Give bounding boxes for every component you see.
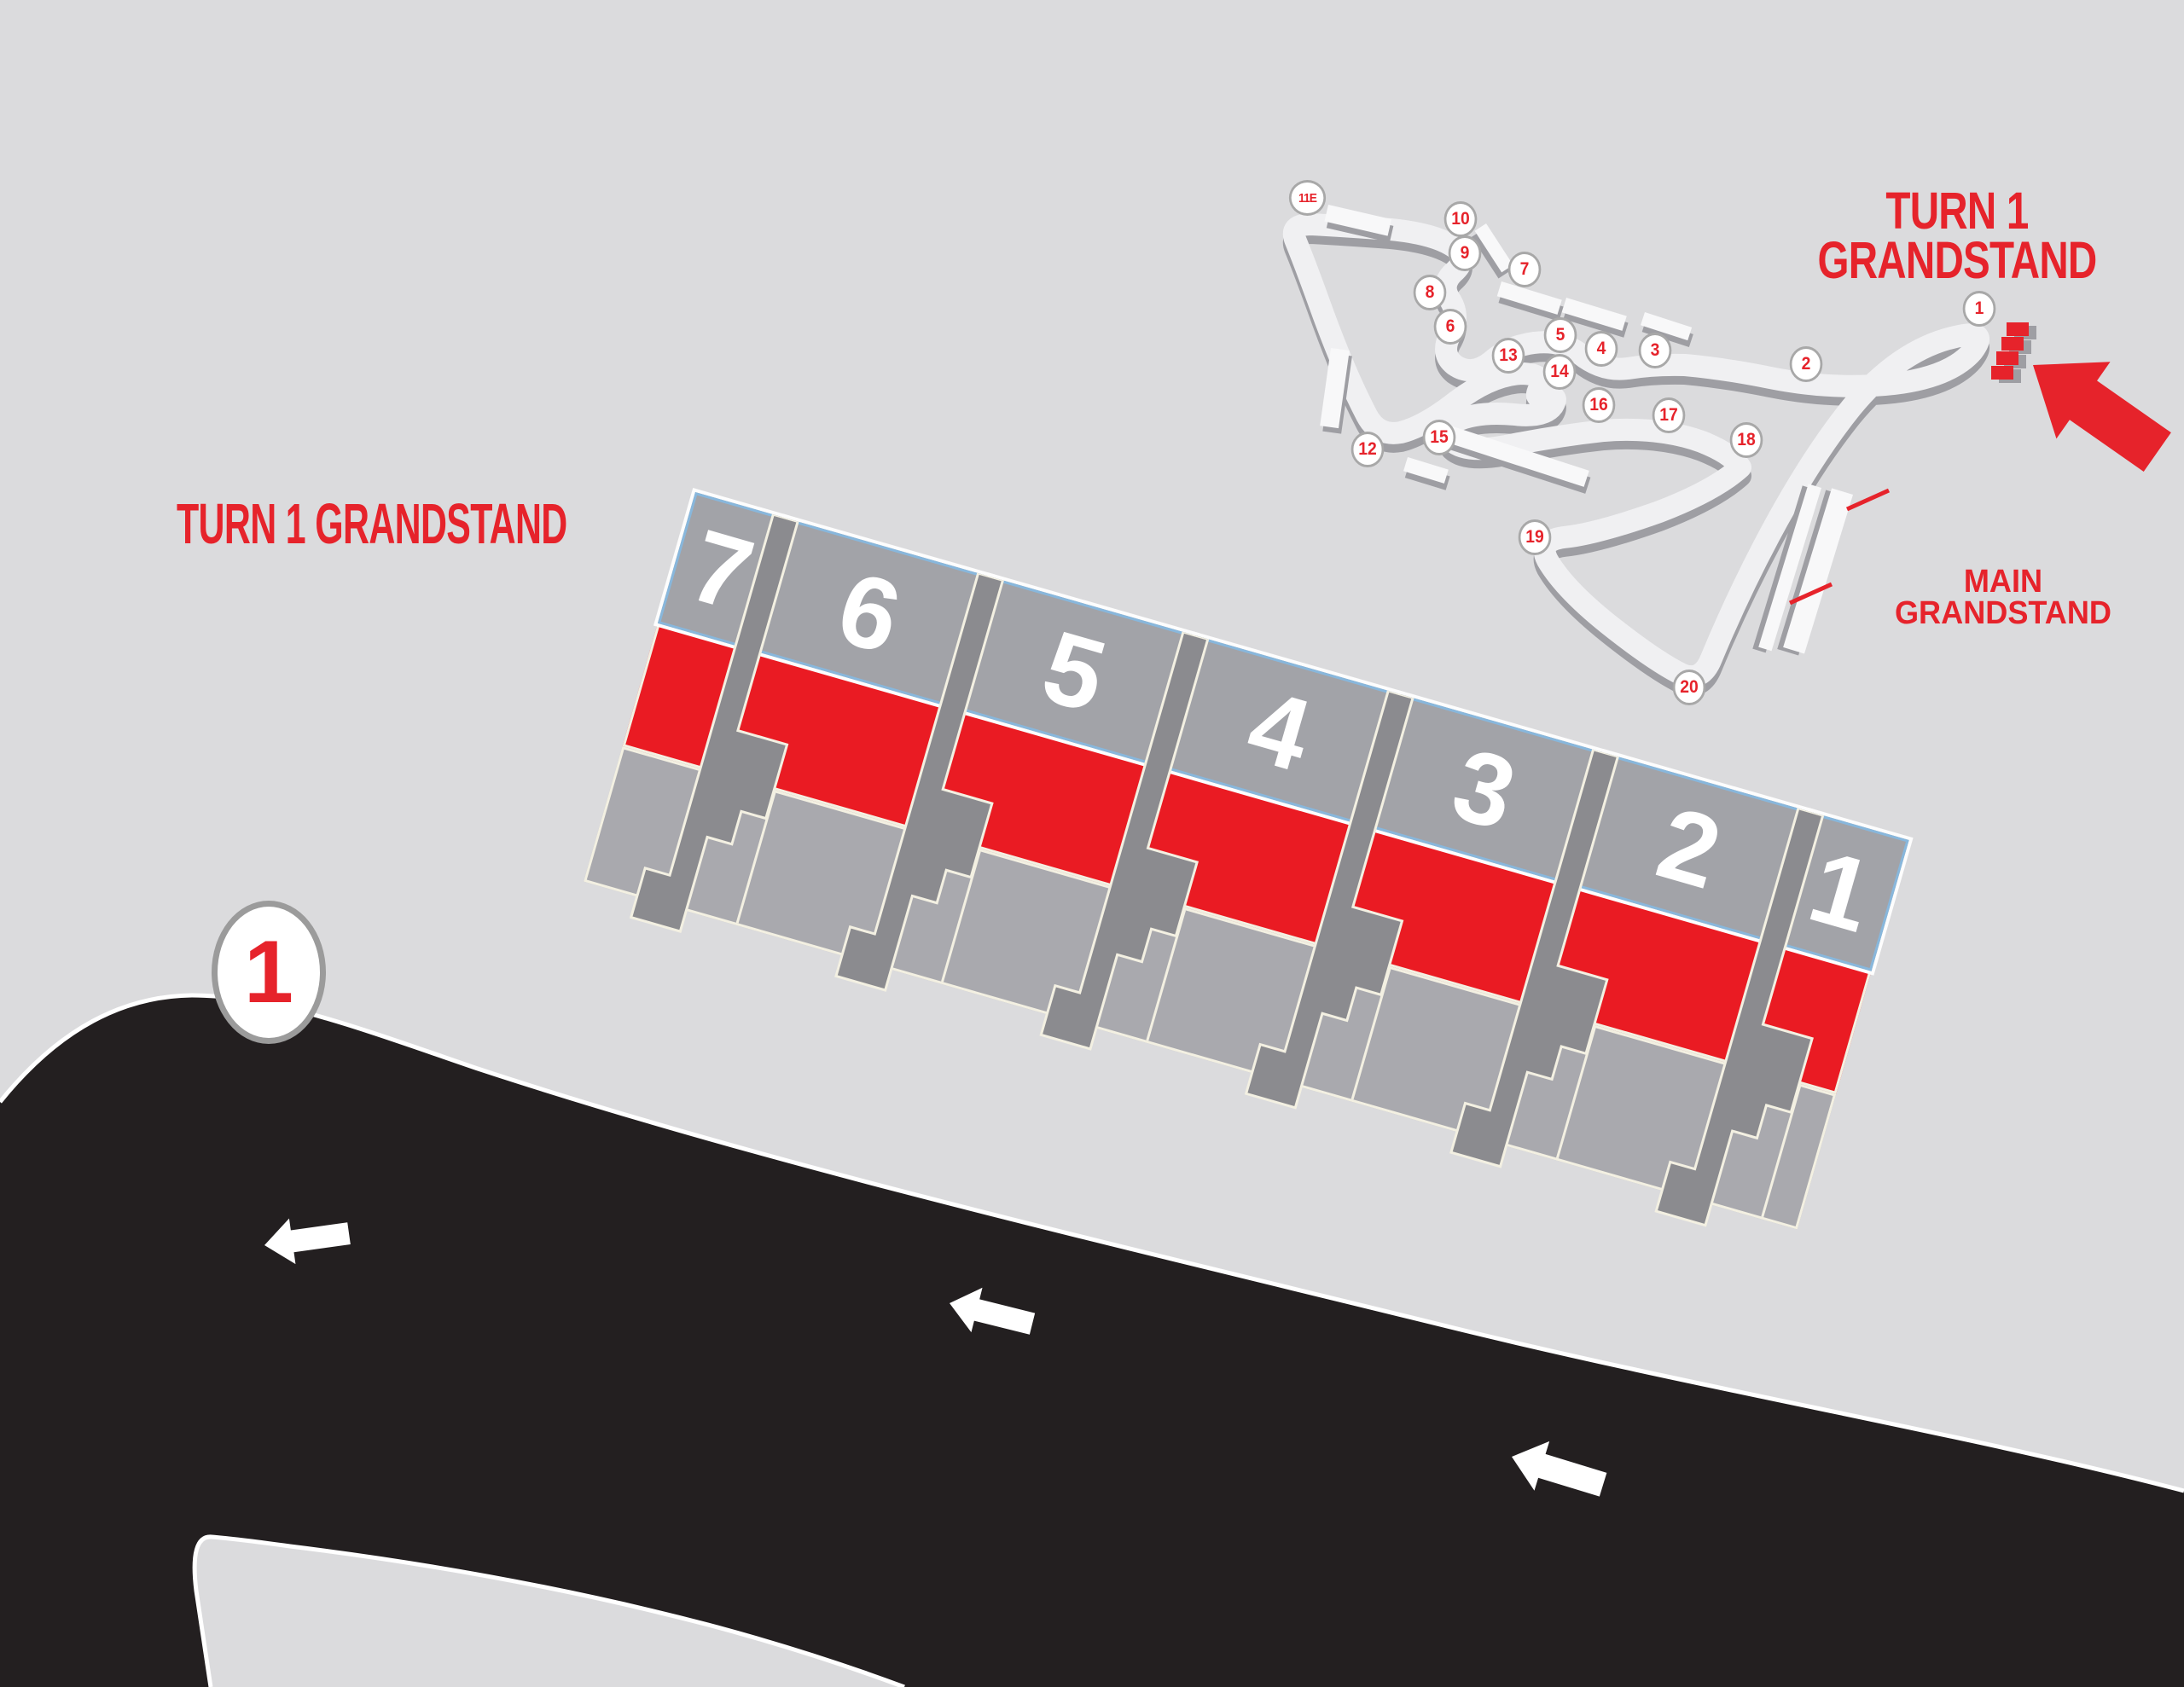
turn-marker-17: 17 (1653, 397, 1686, 433)
walkway-stairs (1041, 625, 1257, 1064)
turn-marker-11E: 11E (1289, 180, 1326, 216)
main-grandstand-line1: MAIN (1890, 566, 2117, 598)
map-callout-line1: TURN 1 (1784, 186, 2130, 235)
turn-marker-19: 19 (1519, 519, 1552, 555)
turn-marker-20: 20 (1673, 670, 1706, 705)
turn1-grandstand-seating-map: 7 6 5 4 3 2 1 TURN 1 GRANDSTAND TURN 1 G… (0, 0, 2184, 1687)
turn-marker-9: 9 (1449, 235, 1482, 271)
turn-marker-14: 14 (1543, 354, 1577, 390)
map-callout-title: TURN 1 GRANDSTAND (1784, 186, 2130, 285)
turn-marker-2: 2 (1790, 346, 1823, 382)
turn-marker-5: 5 (1544, 317, 1577, 353)
turn-marker-18: 18 (1730, 422, 1763, 458)
turn-1-corner-number: 1 (244, 922, 293, 1023)
turn-marker-3: 3 (1639, 333, 1672, 368)
map-callout-line2: GRANDSTAND (1784, 235, 2130, 285)
turn-marker-12: 12 (1351, 432, 1385, 467)
turn-marker-13: 13 (1492, 338, 1525, 374)
turn-marker-10: 10 (1444, 201, 1478, 237)
turn-1-corner-marker: 1 (212, 901, 326, 1044)
page-title: TURN 1 GRANDSTAND (177, 491, 567, 557)
pointer-arrow-icon (2006, 327, 2184, 490)
main-grandstand-line2: GRANDSTAND (1890, 598, 2117, 629)
circuit-ribbon-shadow (1294, 233, 1978, 685)
main-grandstand-label: MAIN GRANDSTAND (1890, 566, 2117, 629)
walkway-stairs (836, 566, 1052, 1005)
walkway-stairs (1451, 743, 1667, 1181)
turn-marker-7: 7 (1508, 252, 1542, 287)
turn-marker-15: 15 (1423, 420, 1456, 455)
turn-marker-16: 16 (1583, 387, 1616, 423)
walkway-stairs (1246, 684, 1462, 1122)
turn-marker-8: 8 (1414, 275, 1447, 310)
turn-marker-4: 4 (1585, 331, 1618, 367)
turn-marker-6: 6 (1434, 309, 1467, 345)
turn1-grandstand-icon (1991, 322, 2036, 383)
turn-marker-1: 1 (1963, 291, 1996, 327)
